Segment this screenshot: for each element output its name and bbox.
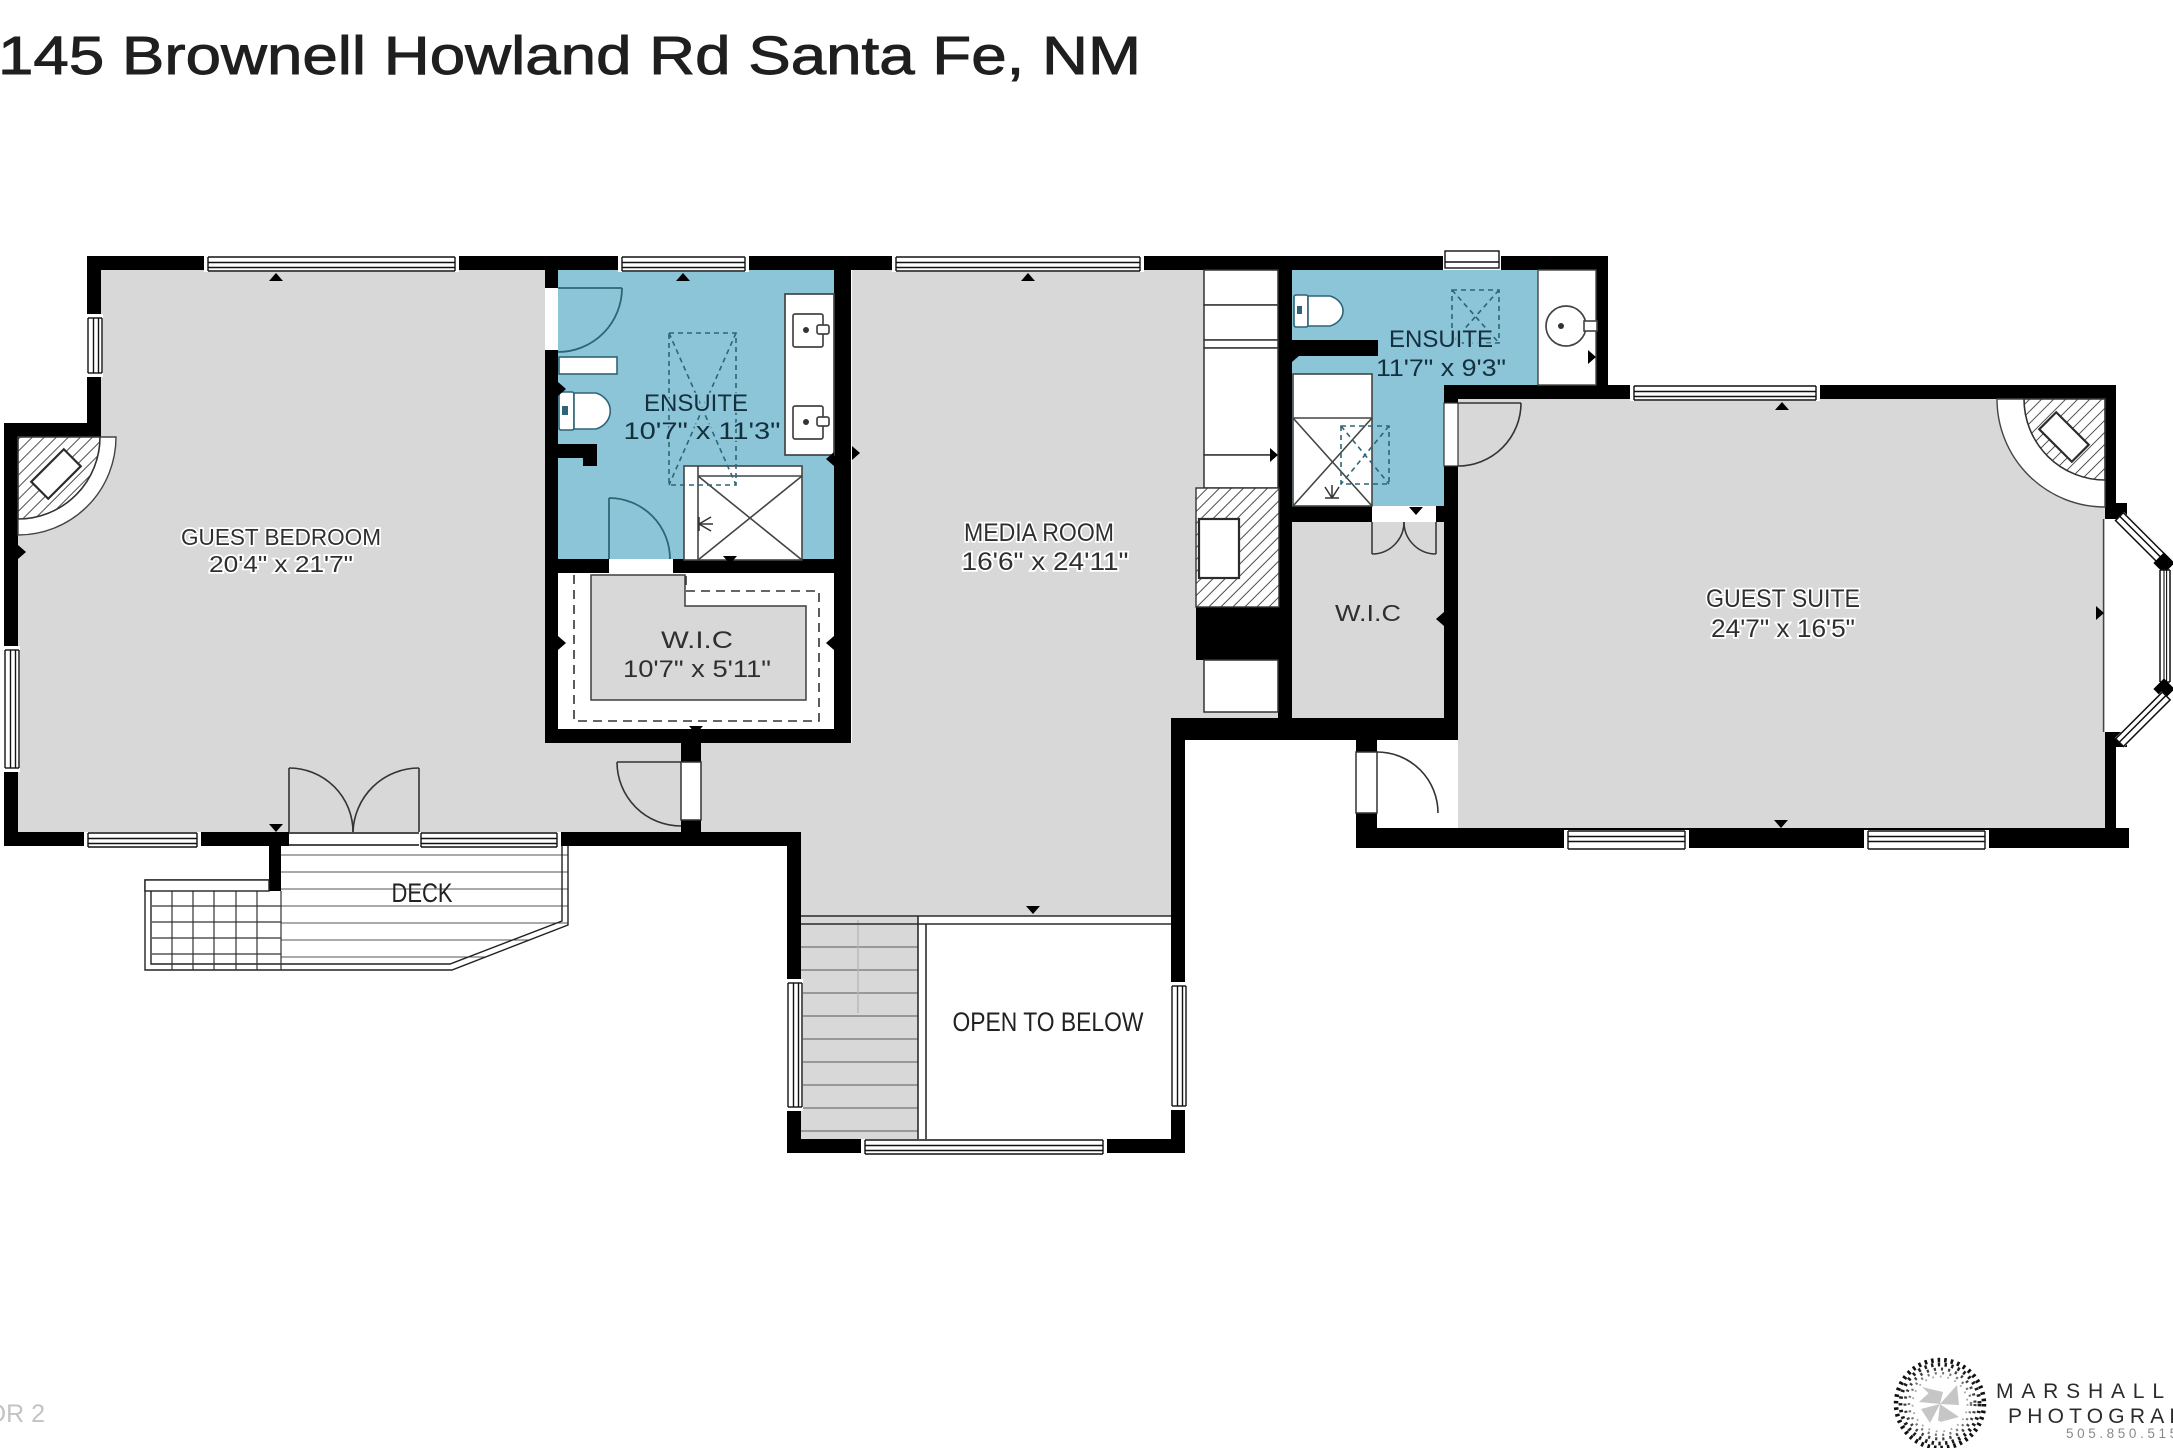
svg-text:24'7" x 16'5": 24'7" x 16'5" [1711,615,1855,643]
svg-text:W.I.C: W.I.C [661,627,733,654]
svg-text:145 Brownell Howland Rd Santa: 145 Brownell Howland Rd Santa Fe, NM [0,27,1141,86]
svg-text:GUEST SUITE: GUEST SUITE [1706,585,1860,613]
svg-text:16'6" x 24'11": 16'6" x 24'11" [962,548,1129,576]
svg-text:MARSHALL: MARSHALL [1996,1380,2164,1403]
svg-text:GUEST BEDROOM: GUEST BEDROOM [181,524,381,550]
svg-text:OPEN TO BELOW: OPEN TO BELOW [953,1007,1144,1037]
svg-text:ENSUITE: ENSUITE [644,390,748,417]
svg-text:505.850.5158: 505.850.5158 [2066,1426,2173,1441]
svg-text:W.I.C: W.I.C [1335,600,1401,626]
svg-text:DECK: DECK [392,878,453,908]
svg-text:10'7" x 11'3": 10'7" x 11'3" [624,418,781,445]
svg-text:20'4" x 21'7": 20'4" x 21'7" [209,551,353,577]
svg-text:PHOTOGRAPHY: PHOTOGRAPHY [2008,1405,2173,1428]
svg-text:FLOOR 2: FLOOR 2 [0,1400,45,1428]
svg-text:MEDIA ROOM: MEDIA ROOM [964,519,1114,547]
svg-text:10'7" x 5'11": 10'7" x 5'11" [623,656,771,683]
svg-text:11'7" x 9'3": 11'7" x 9'3" [1376,355,1506,382]
svg-text:ENSUITE: ENSUITE [1389,326,1493,353]
